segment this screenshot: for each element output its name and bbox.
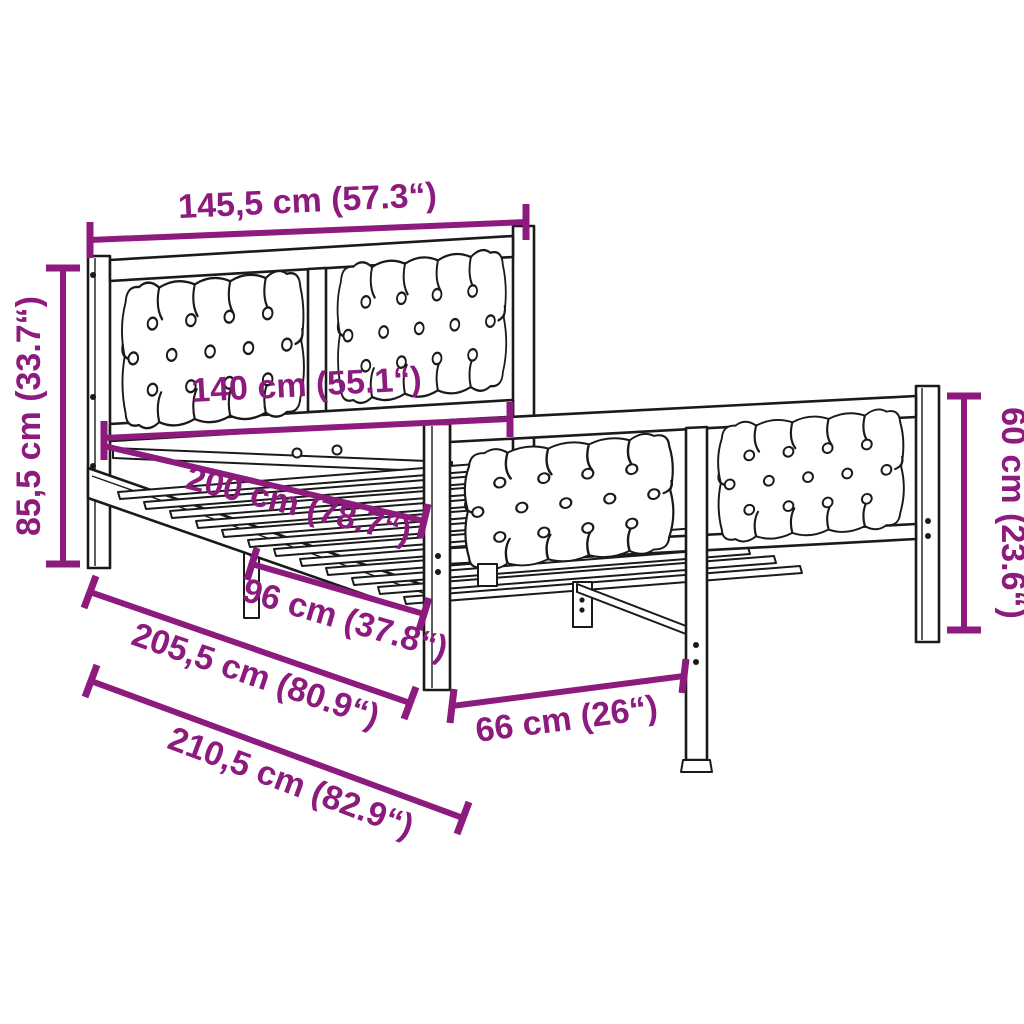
- dimension-label: 85,5 cm (33.7“): [10, 296, 48, 536]
- dimension-headboard-height: 85,5 cm (33.7“): [10, 268, 80, 564]
- footboard-center-post: [686, 427, 707, 760]
- bed-frame-diagram: 145,5 cm (57.3“) 85,5 cm (33.7“) 140 cm …: [0, 0, 1024, 1024]
- diagram-canvas: 145,5 cm (57.3“) 85,5 cm (33.7“) 140 cm …: [0, 0, 1024, 1024]
- dimension-foot-inner-width: 66 cm (26“): [450, 659, 686, 750]
- foot-end-support: [573, 582, 686, 634]
- dimension-footboard-height: 60 cm (23.6“): [947, 396, 1024, 630]
- headboard-right-post: [513, 226, 534, 478]
- mattress-stopper-peg: [293, 449, 302, 458]
- dimension-label: 145,5 cm (57.3“): [177, 176, 437, 226]
- footboard-center-foot: [681, 760, 712, 772]
- mattress-stopper-peg: [333, 446, 342, 455]
- footboard-right-cushion: [718, 407, 904, 544]
- headboard-left-post: [88, 256, 110, 568]
- footboard-left-cushion: [465, 431, 673, 572]
- dimension-label: 210,5 cm (82.9“): [163, 720, 419, 846]
- dimension-label: 60 cm (23.6“): [994, 407, 1024, 619]
- footboard-right-post: [916, 386, 939, 642]
- footboard-foot-block: [478, 564, 497, 586]
- diagonal-brace: [577, 584, 686, 634]
